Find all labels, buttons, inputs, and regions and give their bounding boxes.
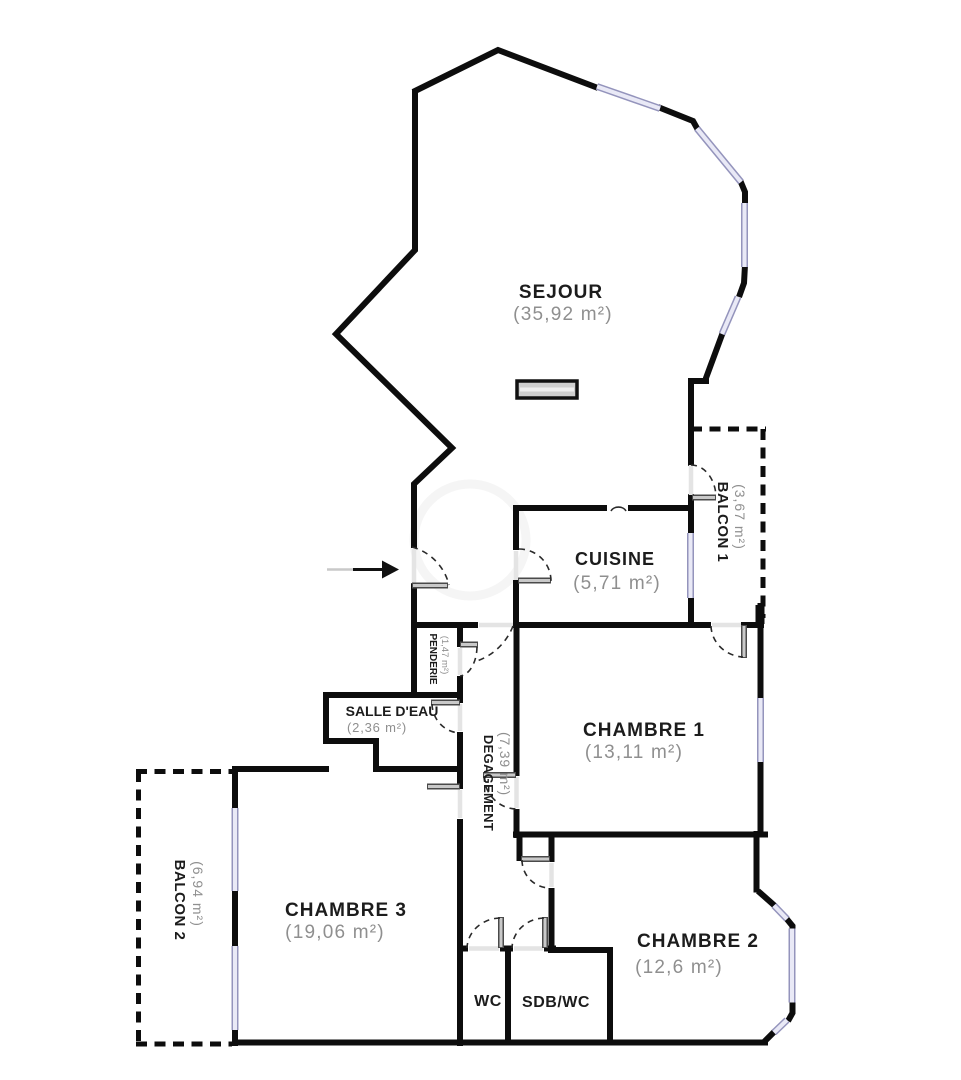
svg-text:CHAMBRE 1: CHAMBRE 1 (583, 720, 705, 741)
svg-text:(19,06 m²): (19,06 m²) (285, 922, 385, 943)
svg-text:SALLE D'EAU: SALLE D'EAU (346, 703, 439, 719)
svg-text:CHAMBRE 2: CHAMBRE 2 (637, 931, 759, 952)
svg-text:WC: WC (474, 993, 502, 1010)
svg-text:(7,39 m²): (7,39 m²) (497, 732, 513, 796)
svg-text:SDB/WC: SDB/WC (522, 994, 590, 1011)
svg-text:(35,92 m²): (35,92 m²) (513, 304, 613, 325)
svg-text:(1,47 m²): (1,47 m²) (439, 636, 450, 675)
svg-text:BALCON 2: BALCON 2 (171, 860, 188, 941)
svg-text:(5,71 m²): (5,71 m²) (573, 573, 661, 594)
svg-text:DEGAGEMENT: DEGAGEMENT (481, 735, 496, 831)
svg-text:(3,67 m²): (3,67 m²) (732, 484, 748, 550)
svg-text:SEJOUR: SEJOUR (519, 282, 603, 303)
svg-text:(6,94 m²): (6,94 m²) (190, 861, 206, 927)
svg-text:CHAMBRE 3: CHAMBRE 3 (285, 900, 407, 921)
svg-text:(12,6 m²): (12,6 m²) (635, 957, 723, 978)
svg-text:BALCON 1: BALCON 1 (714, 482, 731, 563)
svg-text:(13,11 m²): (13,11 m²) (585, 742, 683, 763)
svg-text:(2,36 m²): (2,36 m²) (347, 720, 407, 735)
svg-text:PENDERIE: PENDERIE (427, 633, 438, 684)
svg-text:CUISINE: CUISINE (575, 549, 655, 569)
